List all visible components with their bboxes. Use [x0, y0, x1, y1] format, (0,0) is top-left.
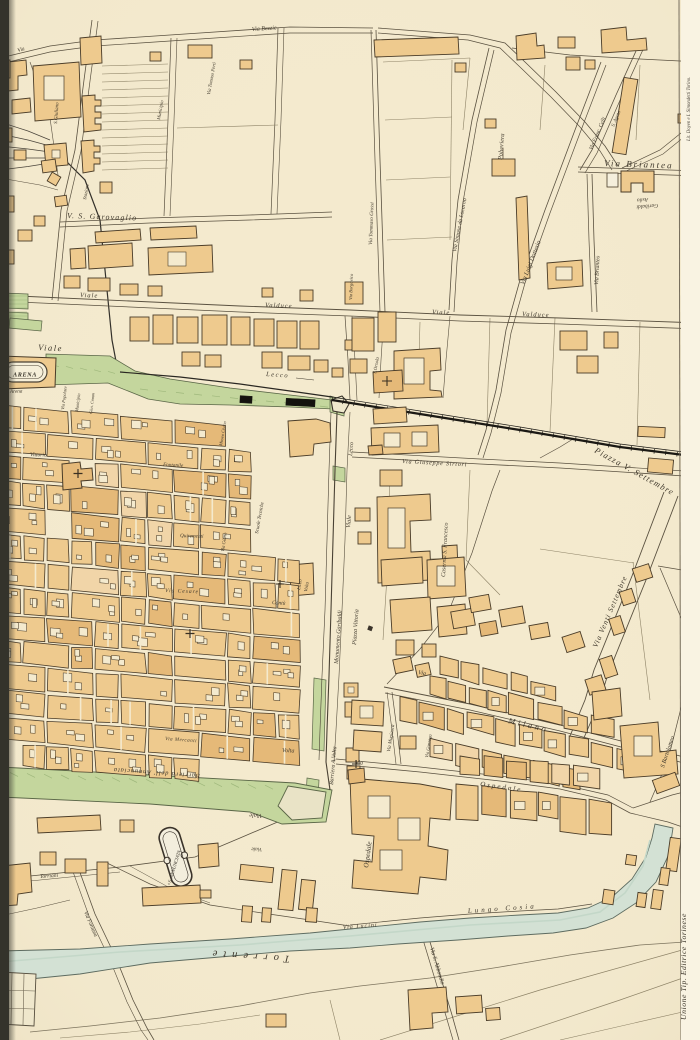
- svg-text:Unione Tip. Editrice Torinese: Unione Tip. Editrice Torinese: [679, 913, 688, 1020]
- svg-text:Viale: Viale: [251, 846, 262, 852]
- svg-text:Quirementi: Quirementi: [180, 533, 204, 540]
- svg-text:Valduce: Valduce: [265, 302, 293, 310]
- svg-text:Lit. Doyen e I. Simondetti: Lit. Doyen e I. Simondetti Torino.: [687, 77, 692, 142]
- svg-text:Fontanile: Fontanile: [162, 462, 184, 469]
- svg-text:Via: Via: [355, 760, 363, 767]
- svg-text:Viale: Viale: [38, 342, 63, 353]
- svg-text:Via Borgovico: Via Borgovico: [348, 273, 354, 300]
- svg-text:Via Cesare: Via Cesare: [165, 588, 199, 595]
- svg-text:Valduce: Valduce: [522, 311, 550, 319]
- svg-text:Vittorio: Vittorio: [30, 452, 47, 459]
- svg-text:Viale: Viale: [345, 515, 353, 528]
- svg-text:Viale: Viale: [80, 292, 98, 300]
- svg-text:Volta: Volta: [282, 748, 295, 754]
- svg-text:Viale: Viale: [249, 812, 262, 819]
- svg-text:Viale: Viale: [432, 309, 450, 317]
- svg-text:Cantù: Cantù: [272, 600, 286, 607]
- svg-text:Asilo: Asilo: [636, 196, 649, 203]
